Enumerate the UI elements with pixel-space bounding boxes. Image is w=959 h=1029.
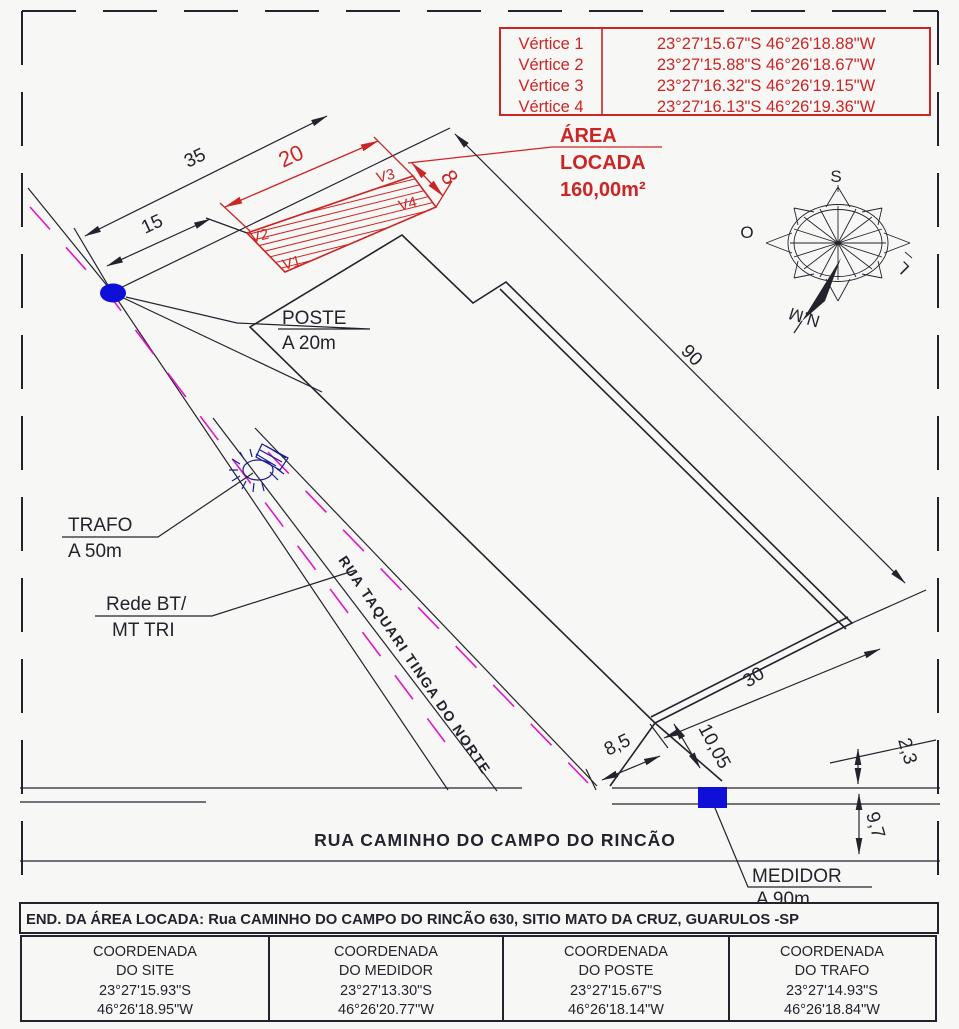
coord-trafo-title: COORDENADA [780, 944, 884, 960]
poste-distance: A 20m [282, 333, 336, 354]
dim-35-label: 35 [181, 144, 209, 172]
vertex-v4-label: V4 [397, 194, 419, 215]
plan-svg: V2 V1 V3 V4 20 8 ÁREA LOCADA 160,00m² [0, 0, 959, 1029]
dim-8-5-label: 8,5 [601, 730, 634, 760]
leased-area: V2 V1 V3 V4 [225, 166, 455, 289]
medidor-symbol [698, 787, 727, 808]
medidor-callout: MEDIDOR A 90m [715, 808, 872, 910]
coord-poste-lon: 46°26'18.14"W [568, 1002, 664, 1018]
coordinate-table: COORDENADA DO SITE 23°27'15.93"S 46°26'1… [21, 936, 936, 1021]
street-name-bottom: RUA CAMINHO DO CAMPO DO RINCÃO [314, 829, 676, 850]
compass-rose [766, 185, 912, 333]
poste-callout: POSTE A 20m [126, 297, 370, 354]
dim-15-label: 15 [138, 211, 166, 239]
dim-10-05-label: 10,05 [694, 720, 735, 772]
site-plan-drawing: V2 V1 V3 V4 20 8 ÁREA LOCADA 160,00m² [0, 0, 959, 1029]
coord-trafo-lat: 23°27'14.93"S [786, 983, 878, 999]
rede-label-line1: Rede BT/ [106, 594, 187, 615]
vertex-row-2-coords: 23°27'15.88"S 46°26'18.67"W [657, 56, 876, 74]
coord-poste-subtitle: DO POSTE [579, 963, 654, 979]
coord-poste-lat: 23°27'15.67"S [570, 983, 662, 999]
area-locada-line3: 160,00m² [560, 179, 646, 201]
black-dimensions [74, 116, 936, 854]
vertex-row-4-label: Vértice 4 [518, 98, 583, 116]
vertex-v3-label: V3 [375, 166, 397, 187]
compass-s-label: S [830, 167, 841, 186]
coord-trafo-lon: 46°26'18.84"W [784, 1002, 880, 1018]
vertex-table: Vértice 1 23°27'15.67"S 46°26'18.88"W Vé… [500, 28, 930, 116]
street-name-diagonal: RUA TAQUARI TINGA DO NORTE [336, 553, 495, 778]
dim-2-3-label: 2,3 [893, 736, 920, 767]
dim-20-label: 20 [275, 140, 308, 173]
vertex-row-1-label: Vértice 1 [518, 35, 583, 53]
medidor-label: MEDIDOR [752, 866, 842, 887]
vertex-row-3-coords: 23°27'16.32"S 46°26'19.15"W [657, 77, 876, 95]
west-boundary-line [28, 188, 448, 790]
vertex-v1-label: V1 [281, 253, 303, 274]
coord-site-lon: 46°26'18.95"W [97, 1002, 193, 1018]
area-locada-callout: ÁREA LOCADA 160,00m² [560, 124, 646, 201]
address-bar: END. DA ÁREA LOCADA: Rua CAMINHO DO CAMP… [20, 903, 938, 933]
coord-medidor-subtitle: DO MEDIDOR [339, 963, 433, 979]
area-locada-line1: ÁREA [560, 124, 617, 147]
dim-90-label: 90 [676, 341, 706, 371]
coord-medidor-lat: 23°27'13.30"S [340, 983, 432, 999]
area-locada-line2: LOCADA [560, 152, 646, 174]
rede-callout: Rede BT/ MT TRI [95, 570, 356, 641]
vertex-row-3-label: Vértice 3 [518, 77, 583, 95]
vertex-row-1-coords: 23°27'15.67"S 46°26'18.88"W [657, 35, 876, 53]
coord-site-title: COORDENADA [93, 944, 197, 960]
address-text: END. DA ÁREA LOCADA: Rua CAMINHO DO CAMP… [26, 910, 799, 928]
rede-label-line2: MT TRI [112, 620, 175, 641]
coord-medidor-title: COORDENADA [334, 944, 438, 960]
compass-spokes [790, 206, 886, 280]
coord-site-subtitle: DO SITE [116, 963, 174, 979]
trafo-label: TRAFO [68, 515, 132, 536]
vertex-row-2-label: Vértice 2 [518, 56, 583, 74]
vertex-row-4-coords: 23°27'16.13"S 46°26'19.36"W [657, 98, 876, 116]
coord-medidor-lon: 46°26'20.77"W [338, 1002, 434, 1018]
poste-symbol [100, 284, 126, 303]
dim-9-7-label: 9,7 [861, 810, 888, 841]
compass-l-label: L [893, 258, 913, 278]
trafo-callout: TRAFO A 50m [62, 473, 253, 562]
coord-poste-title: COORDENADA [564, 944, 668, 960]
coord-trafo-subtitle: DO TRAFO [795, 963, 870, 979]
coord-site-lat: 23°27'15.93"S [99, 983, 191, 999]
compass-o-label: O [740, 223, 753, 242]
poste-label: POSTE [282, 308, 346, 329]
trafo-distance: A 50m [68, 541, 122, 562]
